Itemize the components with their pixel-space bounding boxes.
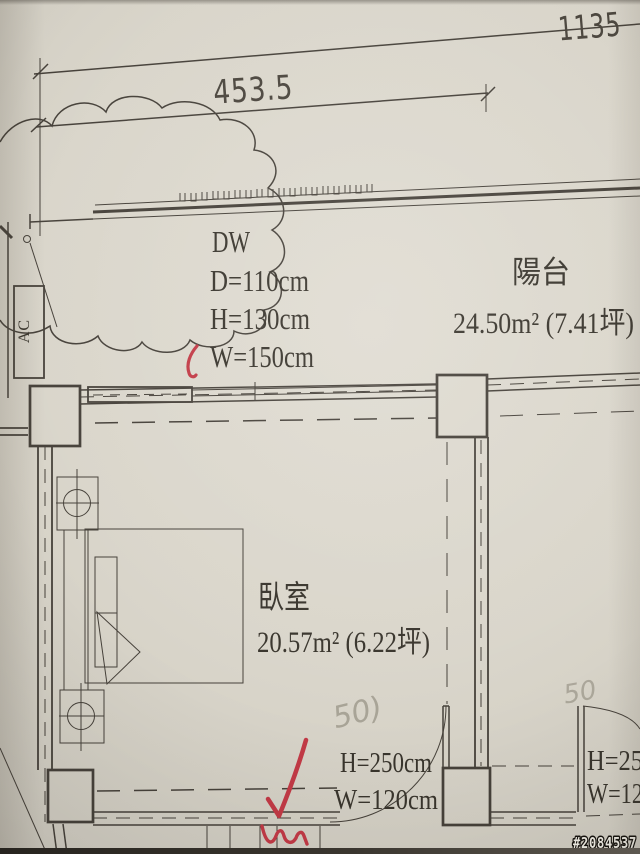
door-swing-arc-right [583, 706, 640, 729]
right-door-width: W=12 [587, 779, 640, 810]
bedroom-area: 20.57m² (6.22坪) [257, 626, 430, 659]
window-spec-width: W=150cm [210, 339, 314, 374]
bedroom-door-height: H=250cm [340, 748, 432, 779]
window-spec-depth: D=110cm [210, 263, 309, 298]
handwritten-note-left: 50) [329, 690, 386, 736]
bedroom-top-wall [80, 382, 437, 404]
photo-bottom-edge [0, 848, 640, 854]
balcony-area: 24.50m² (7.41坪) [453, 307, 634, 340]
hidden-beam-line-top [95, 418, 437, 423]
red-squiggle [262, 826, 307, 844]
balcony-name: 陽台 [512, 255, 570, 290]
pillow-top [95, 557, 117, 613]
red-small-tick [188, 346, 197, 377]
dimension-lines [31, 24, 640, 236]
right-top-wall [487, 373, 640, 416]
window-spec-height: H=130cm [210, 301, 310, 336]
blanket-fold [97, 612, 140, 684]
bedroom-name: 臥室 [258, 579, 310, 615]
dimension-balcony-label: 453.5 [212, 67, 295, 111]
dimension-total-label: 1135 [557, 4, 623, 48]
ac-label: AC [16, 319, 33, 343]
bed-outline [85, 529, 243, 683]
floorplan-photo: 1135 453.5 DW D=110cm H=130cm W=150cm 陽台… [0, 0, 640, 854]
window-spec-title: DW [212, 224, 251, 259]
bedroom-right-wall [447, 437, 488, 768]
handwritten-note-right: 50 [561, 675, 599, 710]
bed-group [56, 469, 243, 751]
headboard [64, 530, 88, 690]
right-door-height: H=25 [587, 746, 640, 777]
floorplan-drawing: 1135 453.5 DW D=110cm H=130cm W=150cm 陽台… [0, 0, 640, 854]
bedroom-door-width: W=120cm [334, 785, 438, 816]
red-checkmark [268, 740, 306, 816]
